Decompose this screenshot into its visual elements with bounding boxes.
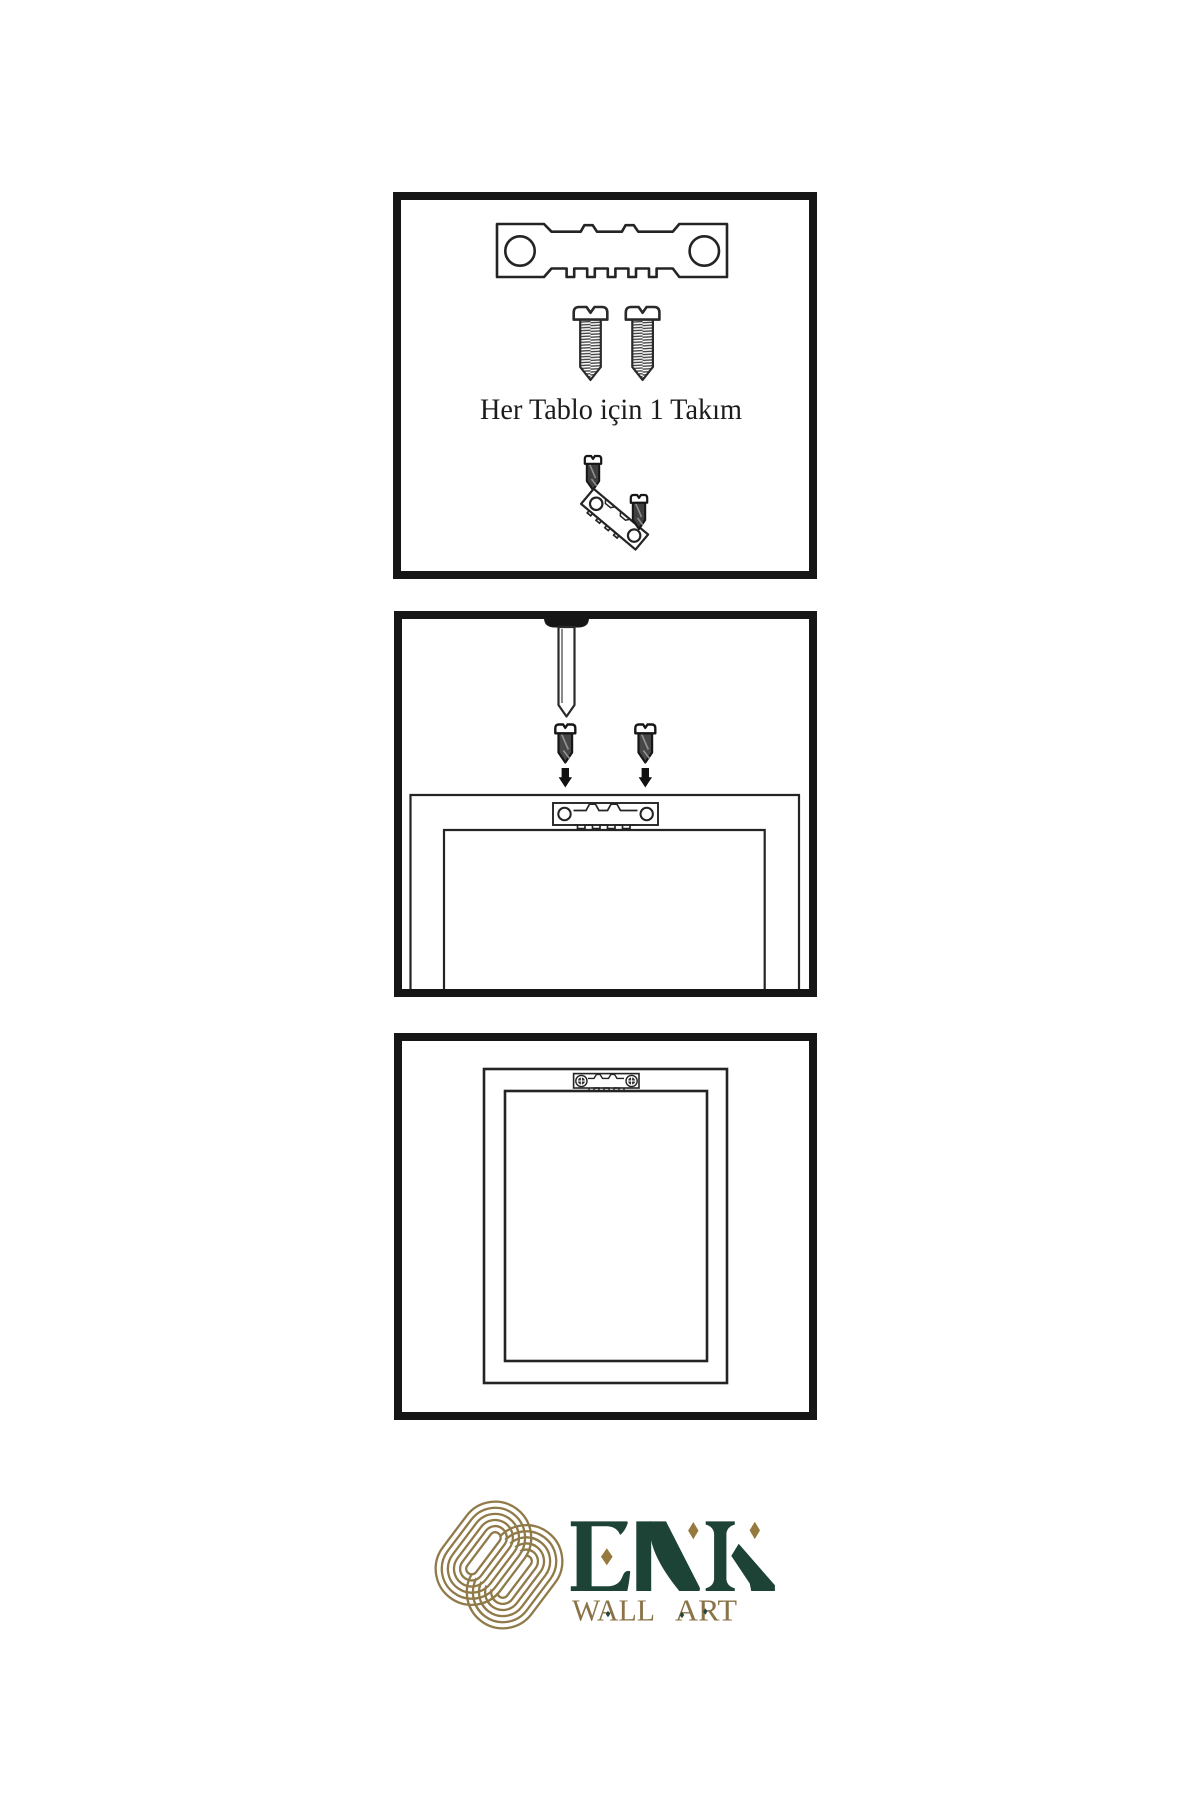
svg-text:WALL: WALL [572,1593,655,1628]
svg-text:Her Tablo için 1 Takım: Her Tablo için 1 Takım [480,393,742,426]
